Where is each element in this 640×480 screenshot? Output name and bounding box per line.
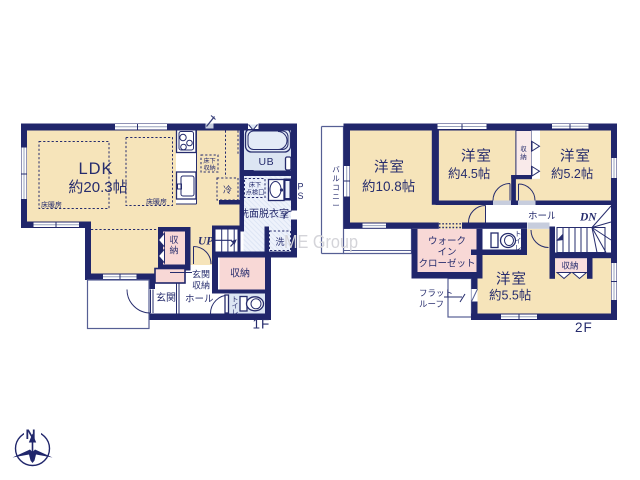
- svg-text:洋室: 洋室: [461, 148, 492, 165]
- svg-text:ルーフ: ルーフ: [419, 299, 444, 309]
- svg-text:ホール: ホール: [185, 294, 214, 305]
- svg-text:納: 納: [520, 152, 527, 161]
- svg-text:床下: 床下: [249, 181, 261, 189]
- svg-text:収納: 収納: [203, 164, 215, 172]
- svg-text:ウォーク: ウォーク: [428, 236, 466, 247]
- svg-text:収: 収: [169, 234, 178, 245]
- svg-text:ル: ル: [332, 174, 340, 183]
- svg-text:2F: 2F: [575, 320, 593, 335]
- svg-text:冷: 冷: [223, 184, 232, 195]
- svg-text:ニ: ニ: [332, 192, 340, 201]
- svg-text:イ: イ: [515, 238, 522, 245]
- svg-text:ME Group: ME Group: [284, 231, 358, 252]
- svg-text:収納: 収納: [562, 261, 579, 271]
- svg-text:床暖房: 床暖房: [146, 197, 167, 206]
- svg-text:洗面脱衣室: 洗面脱衣室: [239, 207, 289, 220]
- svg-text:UB: UB: [259, 156, 275, 168]
- svg-text:納: 納: [169, 245, 178, 256]
- svg-text:洋室: 洋室: [560, 148, 591, 165]
- svg-text:収納: 収納: [230, 267, 250, 280]
- svg-text:バ: バ: [332, 165, 340, 174]
- svg-text:約20.3帖: 約20.3帖: [68, 179, 127, 196]
- svg-text:約10.8帖: 約10.8帖: [362, 179, 415, 194]
- svg-text:DN: DN: [579, 212, 597, 224]
- svg-text:P: P: [298, 182, 304, 192]
- svg-text:洋室: 洋室: [374, 159, 405, 176]
- svg-text:クローゼット: クローゼット: [418, 258, 475, 270]
- svg-text:収納: 収納: [192, 280, 210, 291]
- svg-text:収: 収: [520, 145, 527, 153]
- svg-text:約5.2帖: 約5.2帖: [551, 166, 593, 181]
- svg-text:床下: 床下: [203, 157, 215, 165]
- svg-text:床暖房: 床暖房: [41, 200, 62, 209]
- svg-text:約4.5帖: 約4.5帖: [448, 166, 490, 181]
- svg-text:約5.5帖: 約5.5帖: [489, 288, 531, 303]
- svg-text:ト: ト: [515, 231, 522, 238]
- svg-text:洋室: 洋室: [496, 271, 527, 288]
- svg-text:点検口: 点検口: [246, 189, 265, 197]
- svg-text:玄関: 玄関: [192, 269, 210, 280]
- svg-text:玄関: 玄関: [156, 291, 176, 304]
- svg-text:ホール: ホール: [528, 211, 557, 222]
- svg-text:UP: UP: [198, 236, 214, 248]
- svg-text:1F: 1F: [253, 317, 271, 332]
- svg-text:コ: コ: [332, 183, 340, 192]
- svg-text:イン: イン: [437, 247, 456, 258]
- svg-text:LDK: LDK: [78, 160, 113, 178]
- svg-text:ー: ー: [332, 201, 340, 210]
- svg-text:S: S: [298, 191, 304, 201]
